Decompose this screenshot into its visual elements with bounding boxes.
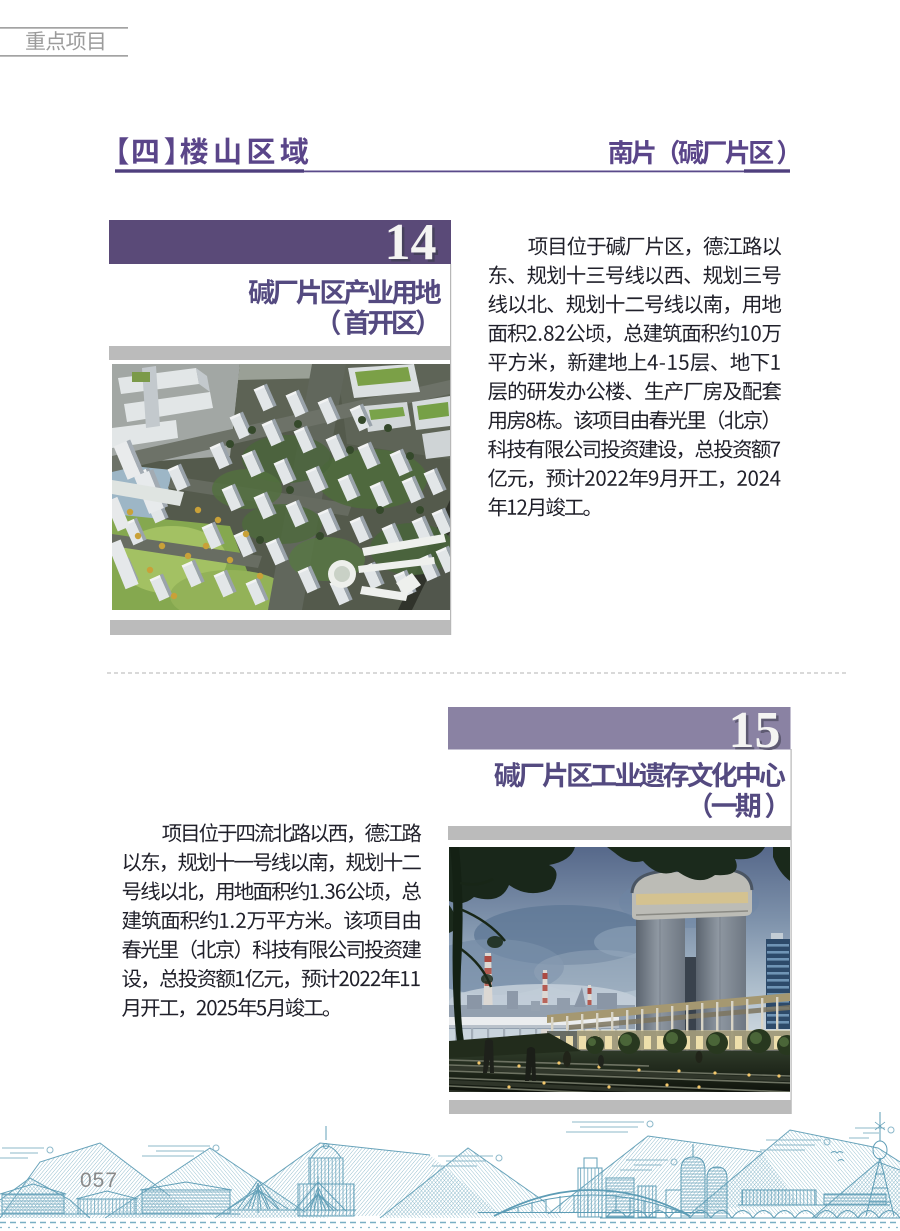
svg-text:14: 14: [385, 214, 437, 271]
svg-text:057: 057: [80, 1169, 118, 1192]
svg-text:15: 15: [729, 702, 781, 759]
